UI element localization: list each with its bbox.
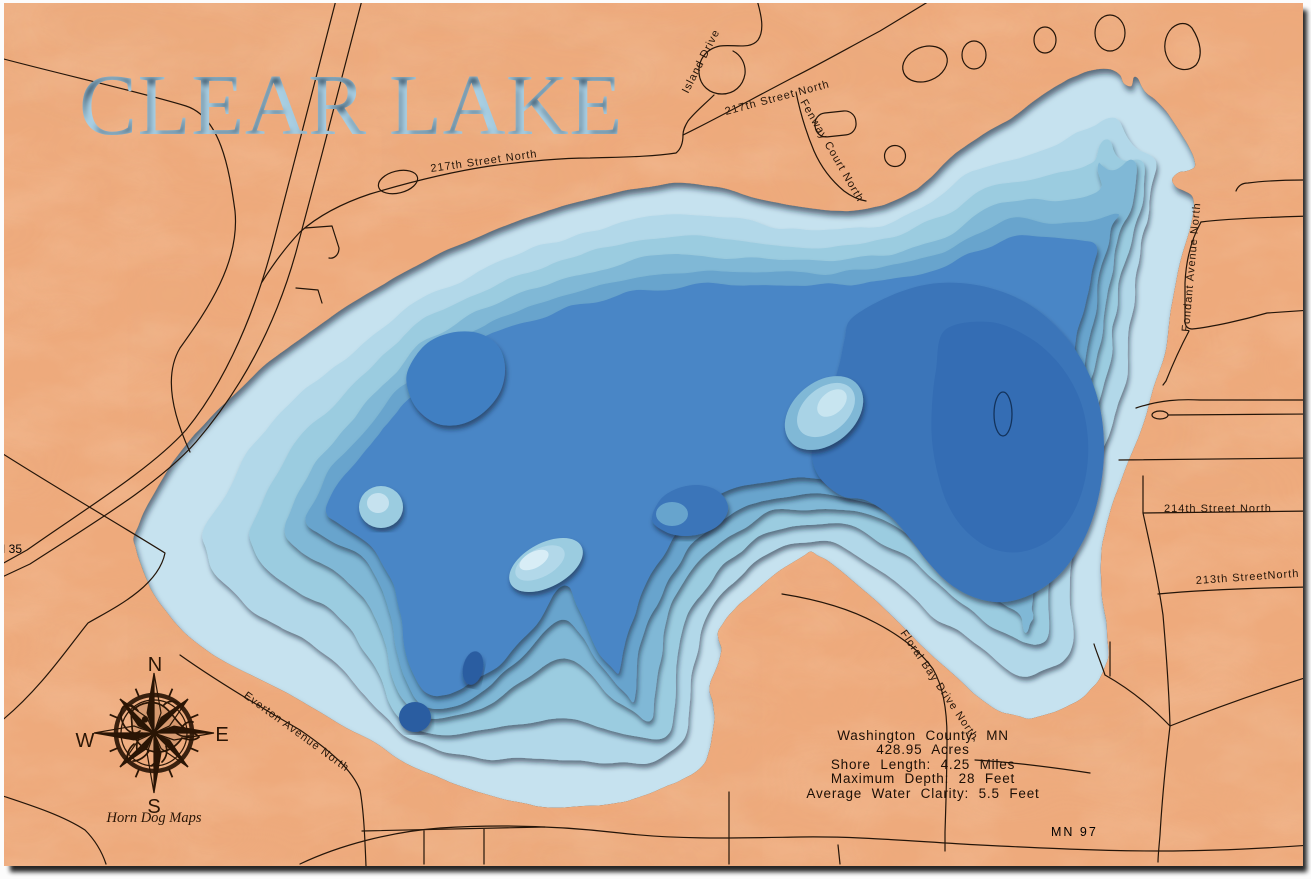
svg-text:Horn Dog Maps: Horn Dog Maps: [105, 810, 201, 826]
svg-text:428.95 Acres: 428.95 Acres: [876, 742, 969, 757]
svg-text:E: E: [215, 724, 228, 746]
svg-text:W: W: [76, 730, 95, 752]
svg-text:Washington County, MN: Washington County, MN: [837, 728, 1009, 743]
svg-text:MN 97: MN 97: [1051, 825, 1098, 839]
svg-text:Maximum Depth: 28 Feet: Maximum Depth: 28 Feet: [831, 771, 1015, 786]
svg-text:N: N: [148, 654, 162, 676]
svg-text:Shore Length: 4.25 Miles: Shore Length: 4.25 Miles: [831, 757, 1015, 772]
svg-text:I 35: I 35: [2, 542, 22, 556]
svg-text:214th Street North: 214th Street North: [1164, 503, 1272, 515]
svg-text:CLEAR LAKE: CLEAR LAKE: [79, 56, 623, 153]
svg-text:Average Water Clarity: 5.5 F: Average Water Clarity: 5.5 Feet: [806, 786, 1039, 801]
